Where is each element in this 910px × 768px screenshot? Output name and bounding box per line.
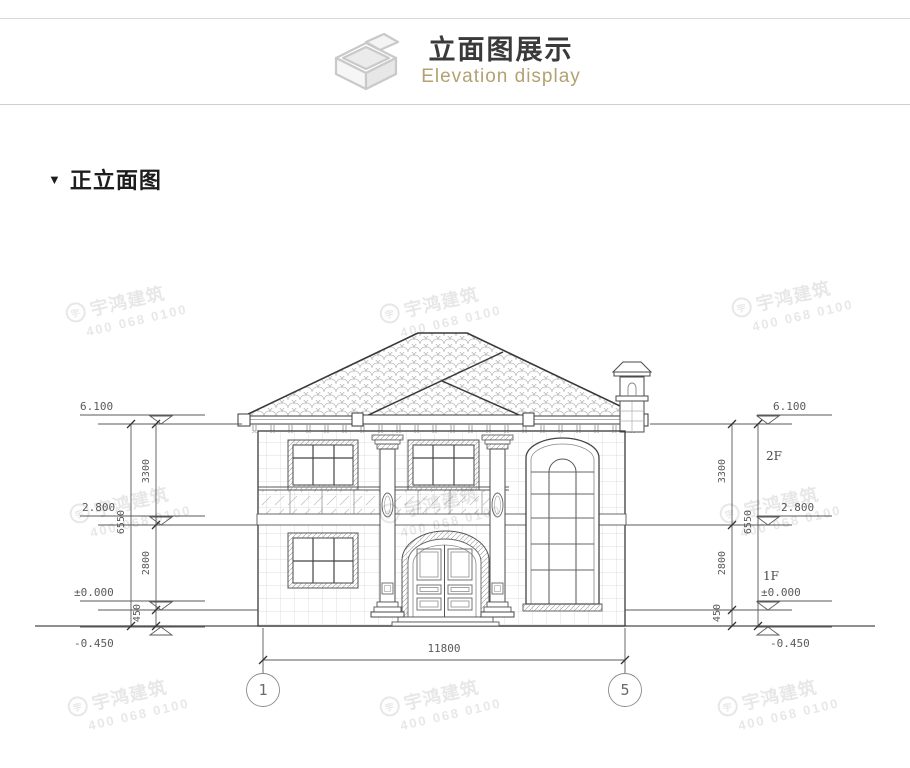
roof [238, 333, 648, 433]
window-2f-center [408, 440, 479, 490]
elevation-drawing [0, 0, 910, 768]
window-1f-left [288, 533, 358, 588]
page: { "header": { "title": "立面图展示", "subtitl… [0, 0, 910, 768]
dimension-bottom [247, 628, 642, 707]
window-2f-left [288, 440, 358, 490]
dimensions-right [625, 415, 832, 635]
dimensions-left [80, 415, 258, 635]
arched-window [523, 438, 602, 611]
